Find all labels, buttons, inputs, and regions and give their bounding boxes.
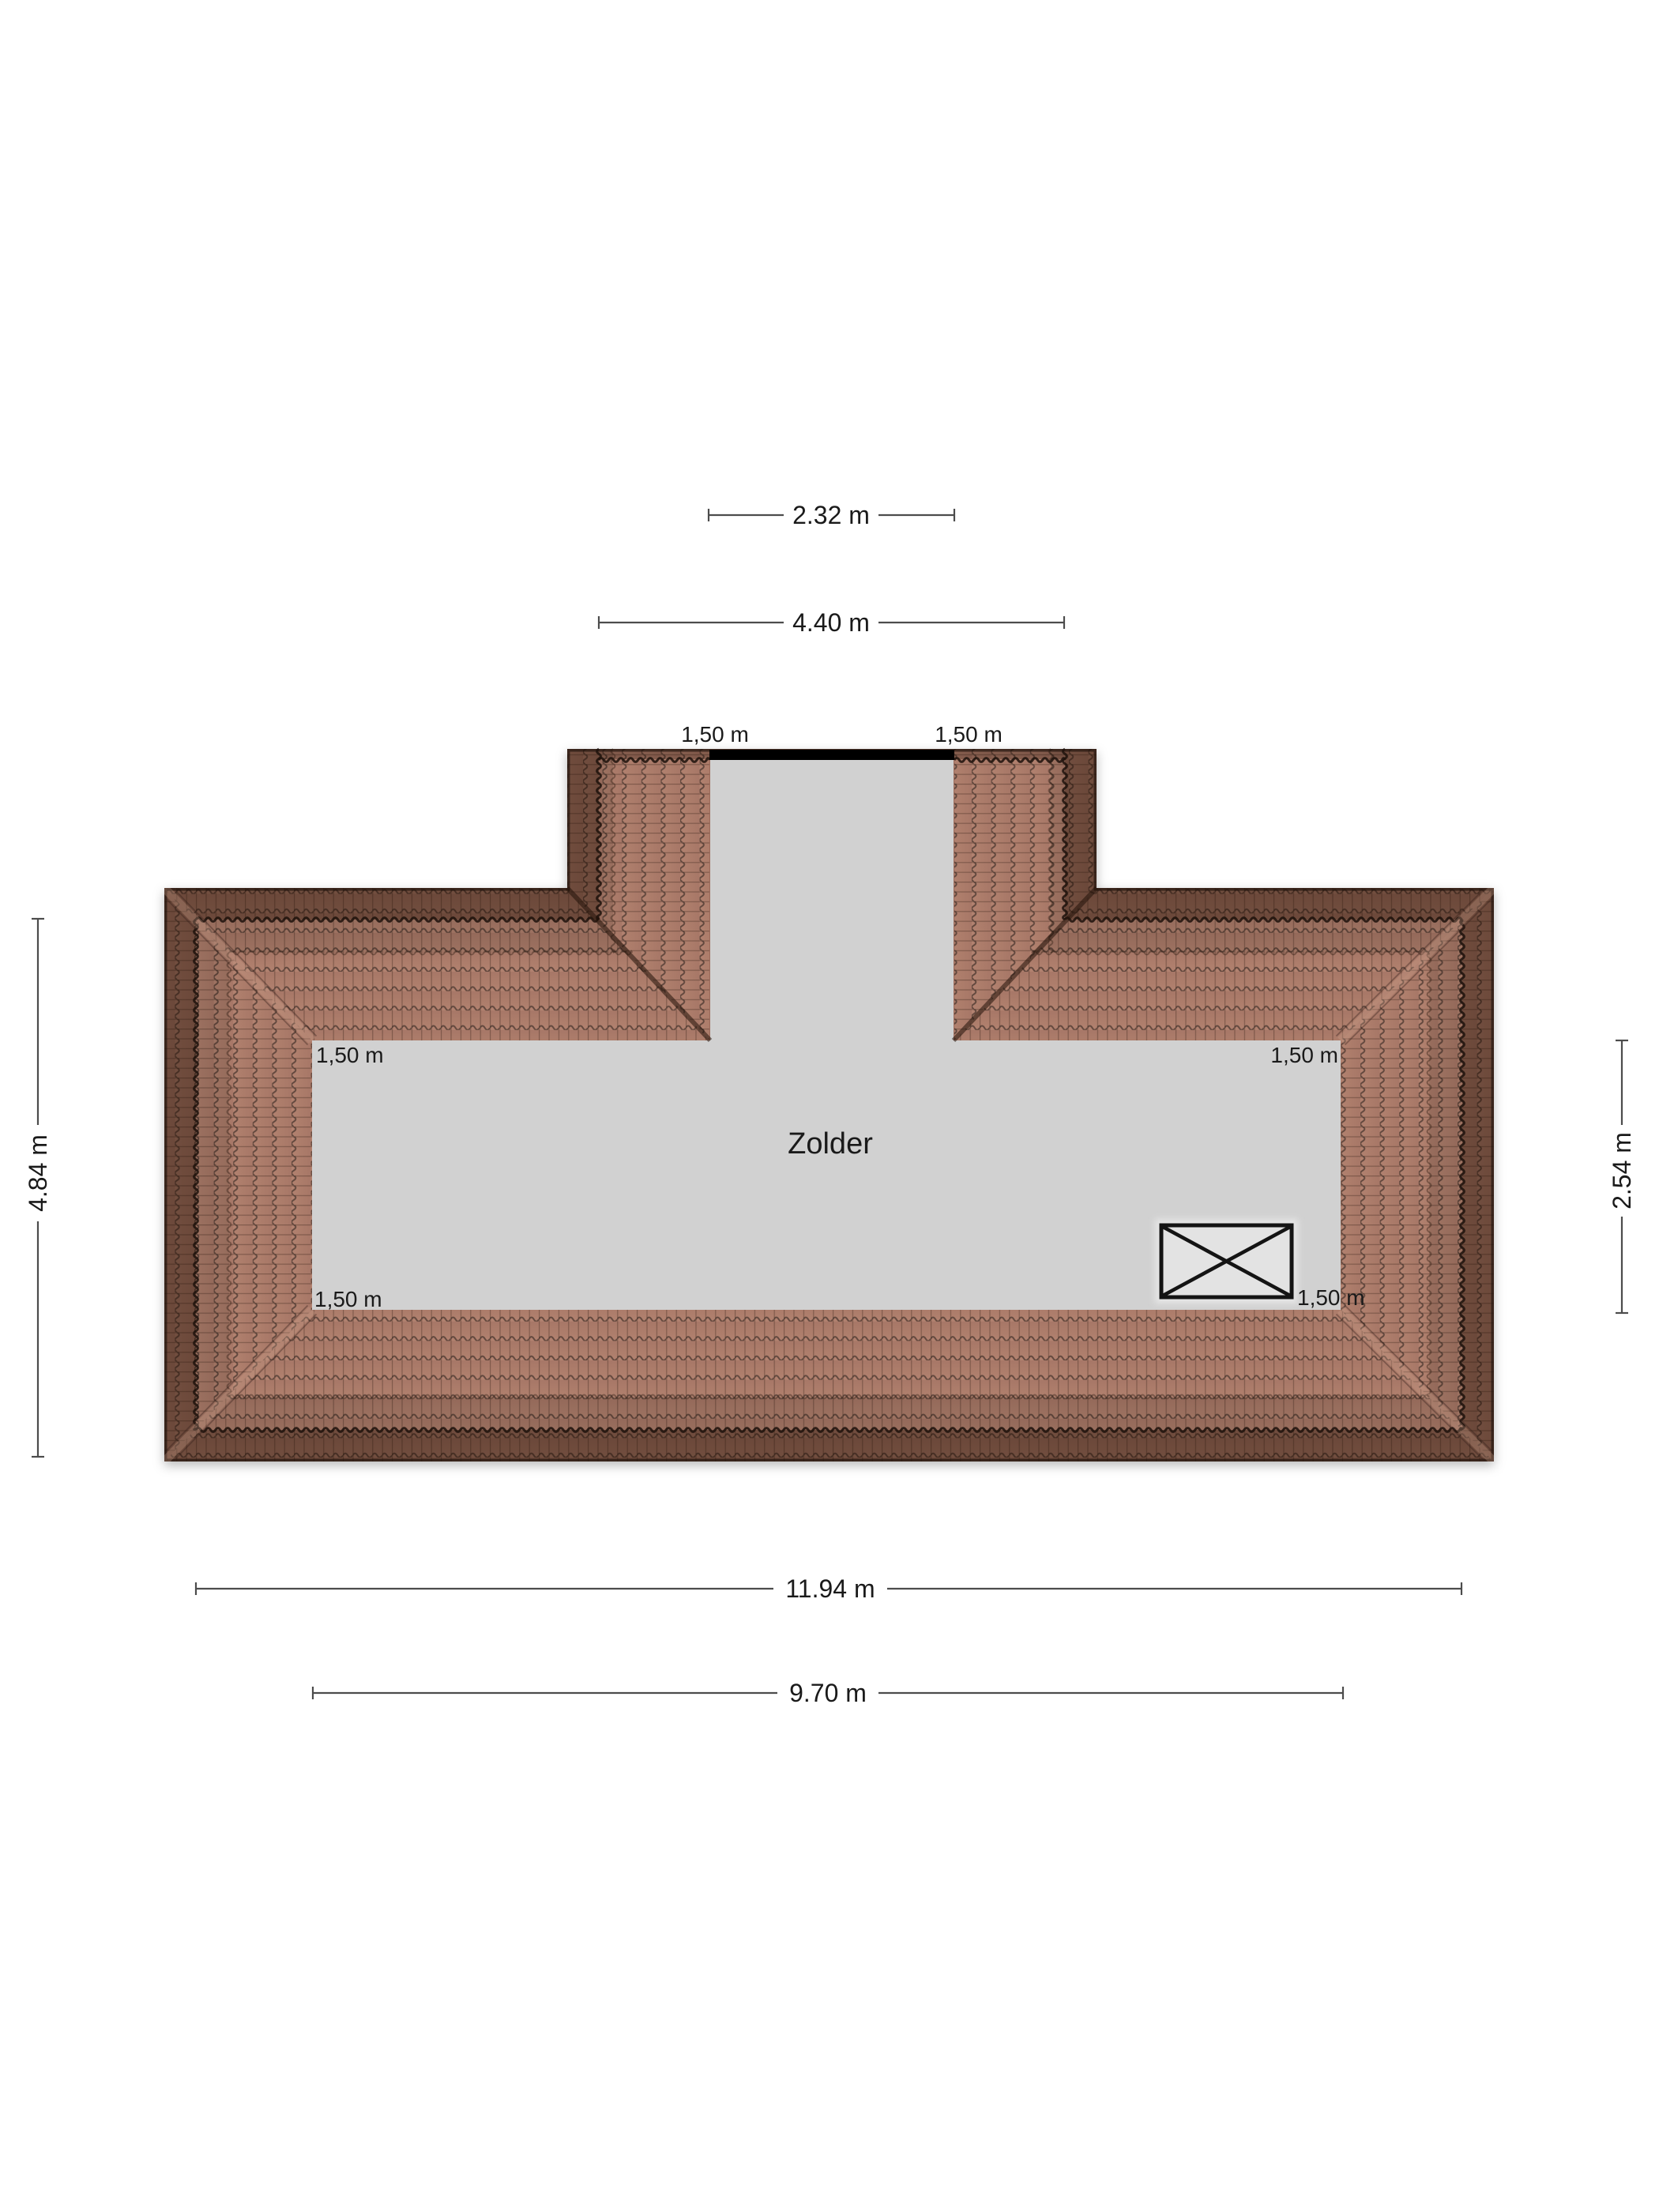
svg-text:2.54 m: 2.54 m xyxy=(1608,1132,1636,1209)
svg-text:1,50 m: 1,50 m xyxy=(1270,1043,1338,1067)
svg-text:9.70 m: 9.70 m xyxy=(789,1679,867,1707)
svg-text:1,50 m: 1,50 m xyxy=(1297,1285,1365,1310)
svg-text:11.94 m: 11.94 m xyxy=(785,1574,875,1603)
svg-text:2.32 m: 2.32 m xyxy=(792,501,870,529)
svg-text:1,50 m: 1,50 m xyxy=(314,1287,382,1311)
svg-text:4.84 m: 4.84 m xyxy=(24,1134,52,1212)
svg-text:4.40 m: 4.40 m xyxy=(792,608,870,637)
svg-text:1,50 m: 1,50 m xyxy=(681,722,749,747)
svg-text:1,50 m: 1,50 m xyxy=(935,722,1003,747)
svg-text:Zolder: Zolder xyxy=(788,1127,873,1161)
svg-text:1,50 m: 1,50 m xyxy=(316,1043,384,1067)
